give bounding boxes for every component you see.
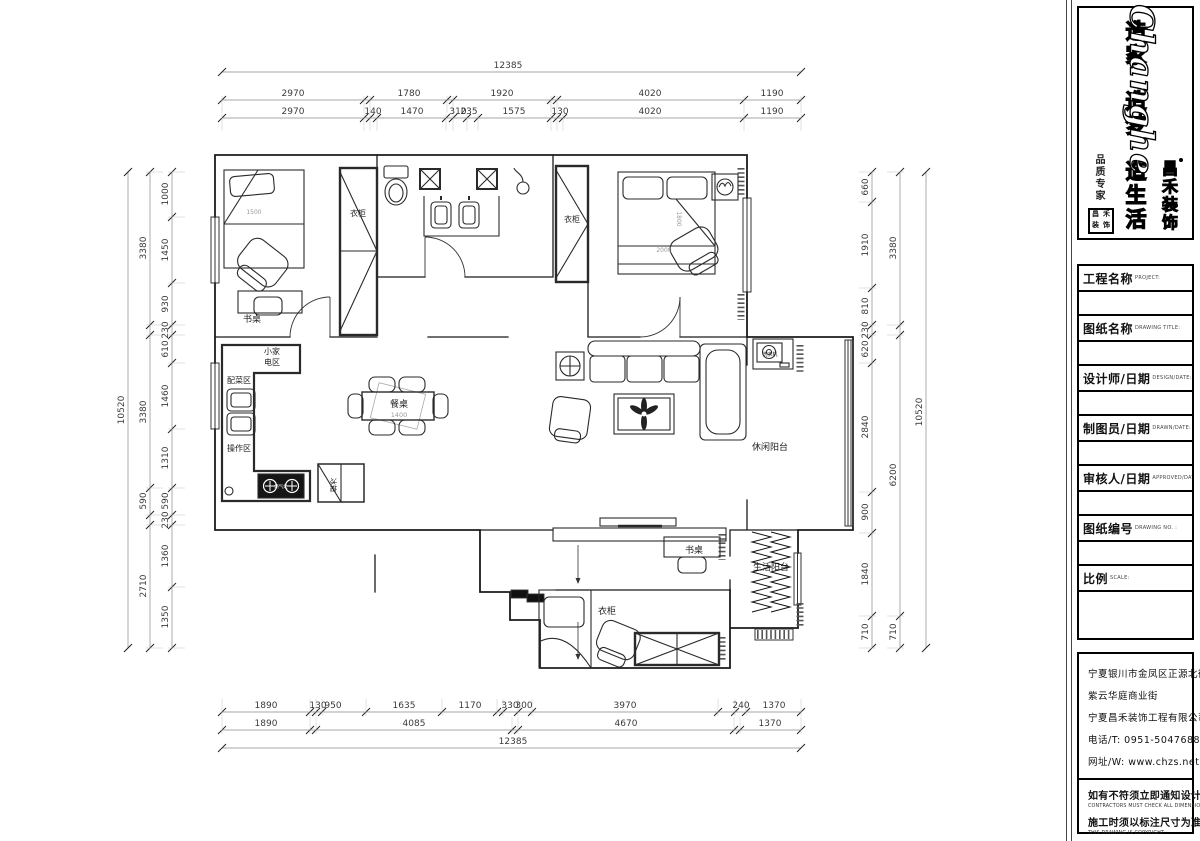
dim-label: 3380: [139, 400, 149, 423]
field-sublabel: DRAWN/DATE:: [1152, 425, 1191, 431]
doors: [290, 237, 680, 602]
plan-label: 餐桌: [390, 398, 408, 410]
note-cn: 如有不符须立即通知设计人员: [1088, 787, 1183, 802]
dim-label: 1370: [763, 701, 786, 711]
plan-label: 衣柜: [598, 605, 616, 617]
plan-label: 休闲阳台: [752, 441, 788, 453]
field-value: [1079, 292, 1192, 316]
plan-label: 衣柜: [564, 214, 580, 224]
wardrobe-3: [635, 633, 719, 665]
field-label: 比例: [1083, 570, 1108, 587]
dim-label: 3970: [614, 701, 637, 711]
dim-label: 1190: [761, 107, 784, 117]
dim-label: 1470: [401, 107, 424, 117]
field-sublabel: PROJECT:: [1135, 275, 1160, 281]
field-drawing-no: 图纸编号DRAWING NO. :: [1079, 516, 1192, 566]
field-label: 图纸名称: [1083, 320, 1133, 337]
plan-label: 2000: [656, 247, 671, 254]
dim-label: 10520: [915, 397, 925, 426]
field-sublabel: DRAWING NO. :: [1135, 525, 1177, 531]
desk-top-left: [238, 291, 302, 315]
field-sublabel: SCALE:: [1110, 575, 1130, 581]
dim-label: 10520: [117, 395, 127, 424]
wardrobe-1: [340, 168, 377, 335]
dim-label: 1635: [393, 701, 416, 711]
dim-label: 1890: [255, 701, 278, 711]
field-approver-date: 审核人/日期APPROVED/DATE:: [1079, 466, 1192, 516]
dim-label: 710: [889, 623, 899, 640]
plan-label: 电区: [264, 357, 280, 367]
sofa: [588, 341, 746, 440]
title-block: 工程名称PROJECT: 图纸名称DRAWING TITLE: 设计师/日期DE…: [1077, 264, 1194, 640]
dim-label: 620: [861, 340, 871, 357]
field-label: 审核人/日期: [1083, 470, 1150, 487]
plan-label: 小家: [264, 346, 280, 356]
bed-top-left: [224, 170, 304, 268]
field-label: 制图员/日期: [1083, 420, 1150, 437]
field-drawing-title: 图纸名称DRAWING TITLE:: [1079, 316, 1192, 366]
sliding-door-icon: [511, 590, 528, 598]
field-value: [1079, 442, 1192, 466]
dim-label: 1370: [759, 719, 782, 729]
dim-label: 3380: [889, 236, 899, 259]
bathroom-fixtures: [384, 166, 529, 236]
dim-label: 4085: [403, 719, 426, 729]
ceiling-light-icon: [517, 182, 529, 194]
field-scale: 比例SCALE:: [1079, 566, 1192, 616]
note-cn: 施工时须以标注尺寸为准: [1088, 814, 1183, 829]
plan-label: 1500: [246, 209, 261, 216]
dim-label: 6200: [889, 463, 899, 486]
dim-label: 610: [161, 340, 171, 357]
dim-label: 230: [161, 321, 171, 338]
dim-label: 300: [515, 701, 532, 711]
company-name: 宁夏昌禾装饰工程有限公司: [1088, 710, 1183, 724]
dim-label: 230: [161, 511, 171, 528]
dim-label: 660: [861, 178, 871, 195]
field-value: [1079, 592, 1192, 616]
info-divider: [1079, 778, 1192, 780]
dim-label: 130: [551, 107, 568, 117]
logo-block: 造家 造梦 造生活 Changhe 昌禾装饰 品质专家 昌禾装饰: [1077, 6, 1194, 240]
dim-label: 1310: [161, 446, 171, 469]
dim-label: 2840: [861, 415, 871, 438]
address-line: 紫云华庭商业街: [1088, 688, 1183, 702]
dim-label: 1910: [861, 233, 871, 256]
side-table-lamp: [556, 352, 584, 380]
door-swing-arrows: [576, 545, 581, 660]
dim-label: 235: [460, 107, 477, 117]
note-en: CONTRACTORS MUST CHECK ALL DIMENSIONS ON…: [1088, 804, 1183, 809]
dim-label: 1000: [161, 182, 171, 205]
seal-char: 禾: [1101, 210, 1112, 221]
dim-label: 140: [364, 107, 381, 117]
furniture: [222, 166, 793, 671]
drawing-sheet: { "brand": { "logo_en": "Changhe", "logo…: [0, 0, 1200, 841]
dim-label: 1450: [161, 238, 171, 261]
calligraphy-signature: 品质专家: [1091, 154, 1106, 202]
field-label: 设计师/日期: [1083, 370, 1150, 387]
phone-line: 电话/T: 0951-5047688: [1088, 732, 1183, 746]
plant-icon: [629, 398, 660, 430]
plan-label: 配菜区: [227, 375, 251, 385]
field-sublabel: DESIGN/DATE:: [1152, 375, 1191, 381]
strip-rule-outer: [1066, 0, 1067, 841]
company-seal-icon: 昌禾装饰: [1088, 208, 1114, 234]
company-info-block: 宁夏银川市金凤区正源北街 紫云华庭商业街 宁夏昌禾装饰工程有限公司 电话/T: …: [1077, 652, 1194, 834]
dim-label: 4670: [615, 719, 638, 729]
plan-label: 书桌: [243, 313, 261, 325]
dim-label: 1890: [255, 719, 278, 729]
dim-label: 810: [861, 297, 871, 314]
fridge: [318, 464, 364, 502]
dim-label: 1190: [761, 89, 784, 99]
field-label: 图纸编号: [1083, 520, 1133, 537]
dim-label: 710: [861, 623, 871, 640]
dim-label: 2970: [282, 107, 305, 117]
dim-label: 1920: [491, 89, 514, 99]
dim-label: 1460: [161, 384, 171, 407]
field-value: [1079, 392, 1192, 416]
field-drafter-date: 制图员/日期DRAWN/DATE:: [1079, 416, 1192, 466]
field-value: [1079, 492, 1192, 516]
nightstand-plant: [712, 174, 738, 200]
plan-label: 操作区: [227, 443, 251, 453]
dim-label: 1170: [459, 701, 482, 711]
dim-label: 900: [861, 503, 871, 520]
armchair-living: [548, 396, 592, 445]
seal-char: 装: [1090, 221, 1101, 232]
dim-label: 1840: [861, 562, 871, 585]
address-line: 宁夏银川市金凤区正源北街: [1088, 666, 1183, 680]
plan-label: 1400: [391, 411, 408, 419]
bed-bottom: [539, 590, 591, 668]
note-en: THIS DRAWING IS COPYRIGHT: [1088, 831, 1183, 836]
field-label: 工程名称: [1083, 270, 1133, 287]
dim-label: 230: [861, 321, 871, 338]
dim-label: 930: [161, 295, 171, 312]
dim-label: 590: [139, 492, 149, 509]
dim-label: 950: [324, 701, 341, 711]
plan-label: 洗衣机: [762, 351, 777, 358]
floor-plan-drawing: 1238529701780192040201190297014014703102…: [0, 0, 1066, 841]
brand-logo-en: Changhe: [1123, 5, 1162, 175]
strip-rule-inner: [1071, 0, 1072, 841]
armchair-top-left: [229, 234, 292, 297]
dim-label: 12385: [499, 737, 528, 747]
field-sublabel: DRAWING TITLE:: [1135, 325, 1180, 331]
dim-label: 1360: [161, 544, 171, 567]
seal-char: 昌: [1090, 210, 1101, 221]
plan-label: 书桌: [685, 544, 703, 556]
dim-label: 4020: [639, 107, 662, 117]
dim-label: 1350: [161, 605, 171, 628]
plan-label: 衣柜: [350, 208, 366, 218]
dim-label: 240: [732, 701, 749, 711]
plan-label: 冰箱: [329, 478, 338, 492]
field-value: [1079, 342, 1192, 366]
field-sublabel: APPROVED/DATE:: [1152, 475, 1192, 481]
dim-label: 2970: [282, 89, 305, 99]
bed-master: [618, 172, 715, 274]
coffee-table: [614, 394, 674, 434]
wardrobe-2: [556, 166, 588, 282]
interior-walls: [215, 155, 798, 592]
plan-label-layer: 衣柜书桌衣柜小家电区配菜区操作区餐桌1400休闲阳台洗衣机生活阳台书桌衣柜冰箱燃…: [227, 208, 789, 617]
dim-label: 4020: [639, 89, 662, 99]
dim-label: 1575: [503, 107, 526, 117]
brand-logo-cn: 昌禾装饰: [1156, 160, 1180, 232]
dim-label: 2710: [139, 574, 149, 597]
plan-label: 燃气灶: [274, 483, 288, 490]
dim-label: 3380: [139, 236, 149, 259]
armchair-master: [666, 223, 725, 281]
field-project: 工程名称PROJECT:: [1079, 266, 1192, 316]
website-line: 网址/W: www.chzs.net: [1088, 754, 1183, 768]
plan-label: 1800: [675, 211, 682, 226]
dim-label: 1780: [398, 89, 421, 99]
seal-char: 饰: [1101, 221, 1112, 232]
dim-label: 590: [161, 492, 171, 509]
dim-label: 12385: [494, 61, 523, 71]
field-designer-date: 设计师/日期DESIGN/DATE:: [1079, 366, 1192, 416]
field-value: [1079, 542, 1192, 566]
